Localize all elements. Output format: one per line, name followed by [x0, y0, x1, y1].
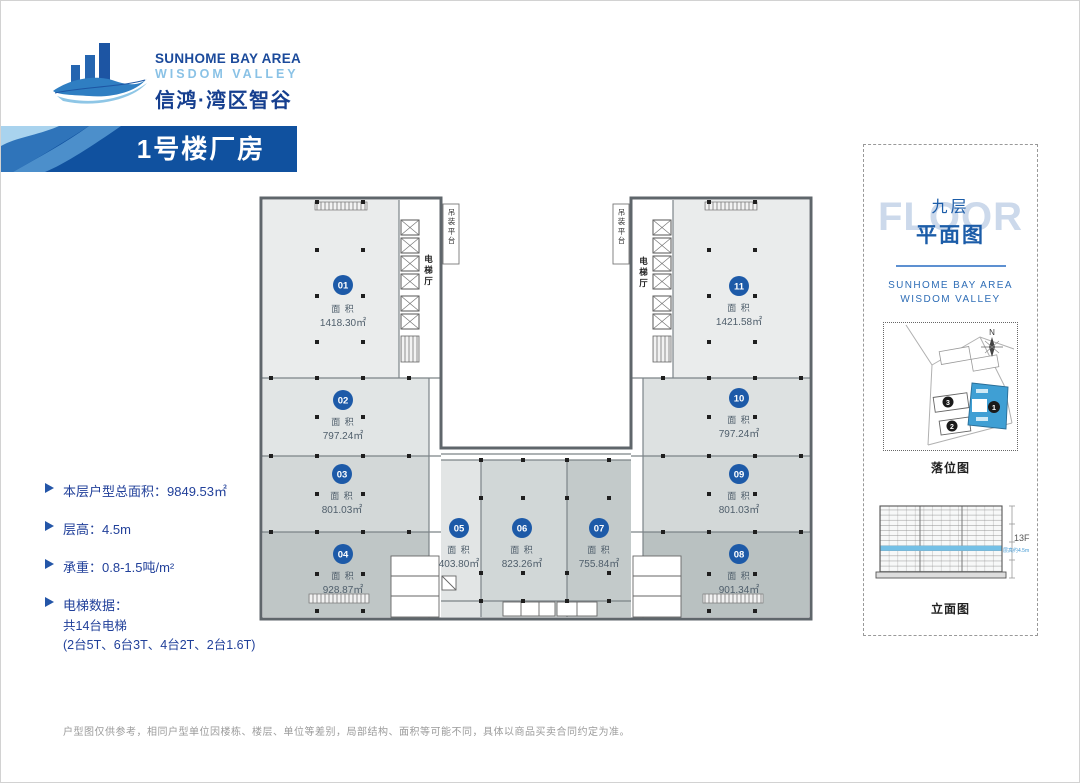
spec-elevators-title: 电梯数据：: [63, 595, 128, 614]
map-building-1-highlighted: 1: [968, 383, 1008, 429]
svg-text:面 积: 面 积: [330, 490, 354, 501]
brand-subname-en: WISDOM VALLEY: [155, 67, 301, 81]
svg-text:403.80㎡: 403.80㎡: [439, 558, 480, 570]
bullet-triangle-icon: [45, 521, 54, 531]
svg-text:3: 3: [946, 400, 950, 407]
map-building-3: 3: [933, 393, 969, 413]
elevation-caption: 立面图: [864, 600, 1037, 617]
elev-floor-count: 13F: [1014, 533, 1030, 543]
svg-text:面 积: 面 积: [331, 303, 355, 314]
panel-divider: [896, 265, 1006, 267]
highlighted-floor-band: [880, 546, 1002, 551]
svg-text:面 积: 面 积: [727, 570, 751, 581]
disclaimer-text: 户型图仅供参考，相同户型单位因楼栋、楼层、单位等差别，局部结构、面积等可能不同，…: [63, 723, 630, 738]
svg-text:面 积: 面 积: [510, 544, 534, 555]
side-panel: FLOOR 九层 平面图 SUNHOME BAY AREA WISDOM VAL…: [863, 144, 1038, 636]
svg-text:05: 05: [454, 524, 465, 535]
spec-total-area-text: 本层户型总面积：9849.53㎡: [63, 481, 227, 500]
svg-text:面 积: 面 积: [727, 302, 751, 313]
svg-text:02: 02: [338, 396, 349, 407]
spec-floor-height: 层高：4.5m: [45, 519, 275, 538]
svg-text:11: 11: [734, 282, 745, 293]
building-title-banner: 1号楼厂房: [1, 126, 297, 172]
floorplan-drawing: 01 面 积 1418.30㎡ 02 面 积 797.24㎡ 03 面 积 80…: [259, 196, 813, 621]
svg-text:07: 07: [594, 524, 605, 535]
svg-text:2: 2: [950, 424, 954, 431]
svg-text:901.34㎡: 901.34㎡: [719, 584, 760, 596]
spec-elevators-count: 共14台电梯: [63, 617, 275, 636]
elevator-hall-label-right: 电梯厅: [637, 256, 650, 289]
brand-name-cn: 信鸿·湾区智谷: [155, 84, 301, 113]
spec-list: 本层户型总面积：9849.53㎡ 层高：4.5m 承重：0.8-1.5吨/m² …: [45, 481, 275, 655]
compass-icon: N: [981, 328, 1003, 357]
page-title: 1号楼厂房: [1, 126, 297, 172]
plan-type-label: 平面图: [916, 219, 985, 249]
bullet-triangle-icon: [45, 483, 54, 493]
svg-text:797.24㎡: 797.24㎡: [323, 430, 364, 442]
spec-elevators: 电梯数据： 共14台电梯 (2台5T、6台3T、4台2T、2台1.6T): [45, 595, 275, 655]
floor-wordmark: FLOOR 九层 平面图: [864, 187, 1037, 255]
svg-text:面 积: 面 积: [727, 490, 751, 501]
svg-text:1418.30㎡: 1418.30㎡: [320, 317, 366, 329]
brand-logo: SUNHOME BAY AREA WISDOM VALLEY 信鸿·湾区智谷: [51, 35, 301, 113]
site-map-caption: 落位图: [864, 459, 1037, 476]
map-plots: [939, 346, 999, 371]
svg-text:801.03㎡: 801.03㎡: [322, 504, 363, 516]
map-building-2: 2: [939, 417, 971, 435]
site-map: 3 2 1 N: [884, 323, 1015, 448]
svg-text:09: 09: [734, 470, 745, 481]
spec-floor-height-text: 层高：4.5m: [63, 519, 131, 538]
bullet-triangle-icon: [45, 597, 54, 607]
svg-text:N: N: [989, 328, 995, 337]
brand-name-en: SUNHOME BAY AREA: [155, 51, 301, 66]
panel-brand-line1: SUNHOME BAY AREA: [864, 279, 1037, 293]
svg-text:797.24㎡: 797.24㎡: [719, 428, 760, 440]
spec-total-area: 本层户型总面积：9849.53㎡: [45, 481, 275, 500]
hoist-platform-label-left: 吊装平台: [445, 208, 458, 246]
svg-text:10: 10: [734, 394, 745, 405]
svg-text:面 积: 面 积: [331, 416, 355, 427]
elevation-diagram: 13F 层高约4.5m: [872, 500, 1030, 592]
svg-text:面 积: 面 积: [331, 570, 355, 581]
svg-text:面 积: 面 积: [587, 544, 611, 555]
floor-number-label: 九层: [931, 193, 969, 217]
bullet-triangle-icon: [45, 559, 54, 569]
spec-load: 承重：0.8-1.5吨/m²: [45, 557, 275, 576]
svg-text:755.84㎡: 755.84㎡: [579, 558, 620, 570]
hoist-platform-label-right: 吊装平台: [615, 208, 628, 246]
svg-text:823.26㎡: 823.26㎡: [502, 558, 543, 570]
svg-text:1: 1: [992, 403, 996, 412]
panel-brand-line2: WISDOM VALLEY: [864, 293, 1037, 307]
svg-text:06: 06: [517, 524, 528, 535]
svg-text:面 积: 面 积: [447, 544, 471, 555]
floorplan-sheet: SUNHOME BAY AREA WISDOM VALLEY 信鸿·湾区智谷 1…: [0, 0, 1080, 783]
svg-text:08: 08: [734, 550, 745, 561]
svg-text:928.87㎡: 928.87㎡: [323, 584, 364, 596]
svg-text:1421.58㎡: 1421.58㎡: [716, 316, 762, 328]
svg-text:01: 01: [338, 281, 349, 292]
elevator-core-right: [653, 220, 671, 362]
spec-load-text: 承重：0.8-1.5吨/m²: [63, 557, 174, 576]
site-map-box: 3 2 1 N: [883, 322, 1018, 451]
svg-text:801.03㎡: 801.03㎡: [719, 504, 760, 516]
spec-elevators-detail: (2台5T、6台3T、4台2T、2台1.6T): [63, 636, 275, 655]
logo-mark-icon: [51, 35, 149, 107]
svg-text:04: 04: [338, 550, 349, 561]
floorplan: 01 面 积 1418.30㎡ 02 面 积 797.24㎡ 03 面 积 80…: [259, 196, 813, 621]
elev-height-note: 层高约4.5m: [1003, 547, 1029, 554]
svg-text:面 积: 面 积: [727, 414, 751, 425]
elevator-hall-label-left: 电梯厅: [422, 254, 435, 287]
elevator-core-left: [401, 220, 419, 362]
svg-text:03: 03: [337, 470, 348, 481]
